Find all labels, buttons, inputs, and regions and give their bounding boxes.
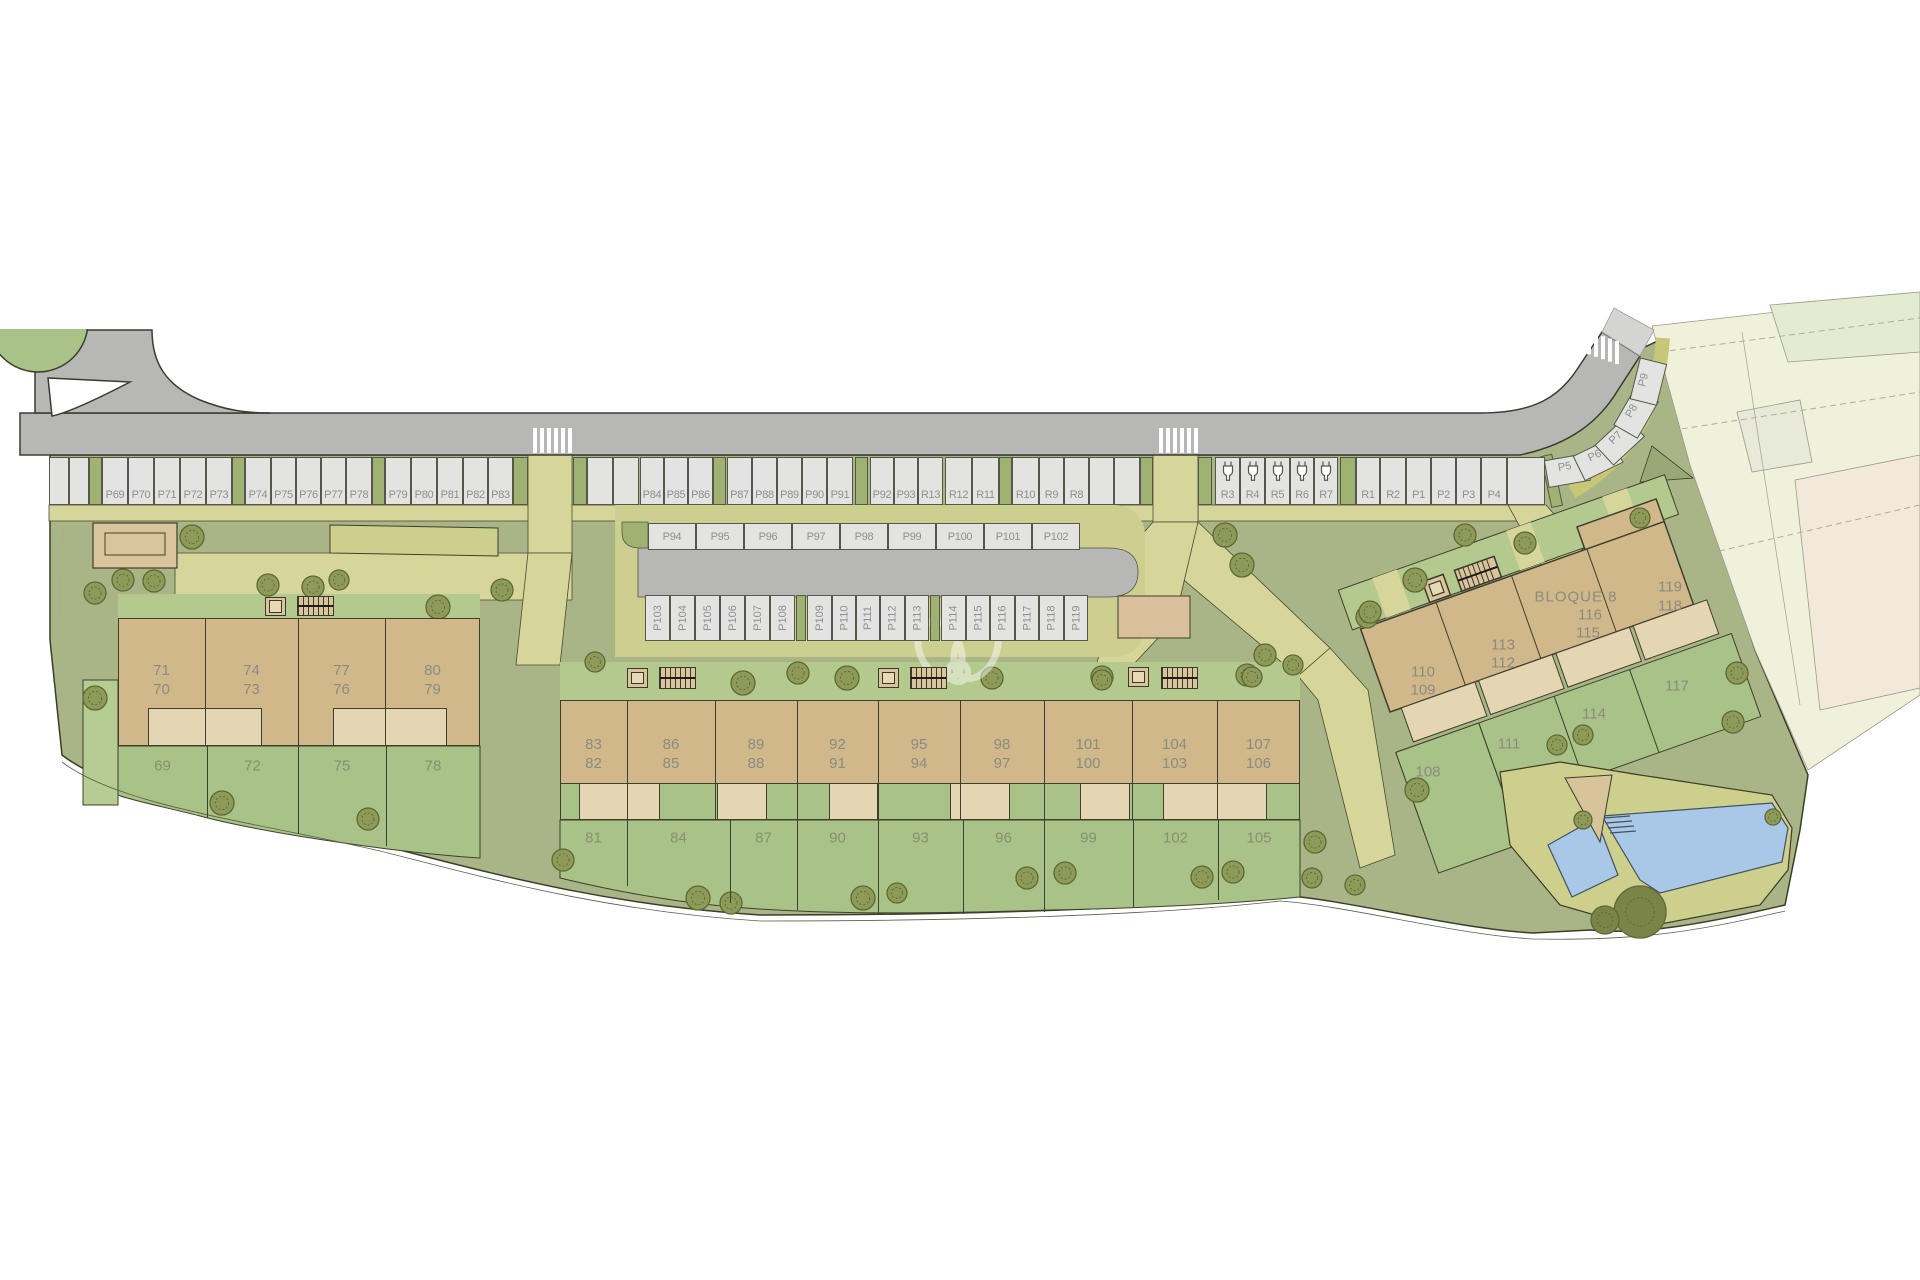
parking-stall-p78: P78 bbox=[346, 457, 372, 505]
terrace bbox=[950, 783, 1010, 820]
parking-stall-p2: P2 bbox=[1431, 457, 1456, 505]
unit-number: 74 bbox=[243, 661, 260, 680]
parking-stall-r9: R9 bbox=[1039, 457, 1064, 505]
elevator-icon bbox=[265, 597, 286, 616]
elevator-car bbox=[269, 600, 282, 612]
site-plan: BLOQUE 6 BLOQUE 7 P69P70P71P72P73P74P75P… bbox=[0, 0, 1920, 1280]
parking-stall-r6: R6 bbox=[1290, 457, 1314, 505]
garden-divider bbox=[207, 746, 208, 818]
unit-number-112: 112 bbox=[1491, 654, 1515, 673]
parking-stall-p82: P82 bbox=[463, 457, 488, 505]
stall-label: R5 bbox=[1271, 489, 1284, 504]
terrace bbox=[717, 783, 767, 820]
unit-divider bbox=[797, 700, 798, 820]
parking-stall-p75: P75 bbox=[271, 457, 296, 505]
parking-stall-p1: P1 bbox=[1406, 457, 1431, 505]
unit-number-115: 115 bbox=[1576, 624, 1600, 643]
stall-label: P88 bbox=[755, 489, 774, 504]
parking-stall-p72: P72 bbox=[180, 457, 206, 505]
parking-stall-p88: P88 bbox=[752, 457, 777, 505]
stall-label: P95 bbox=[711, 531, 730, 549]
parking-stall-p74: P74 bbox=[245, 457, 271, 505]
parking-stall-p89: P89 bbox=[777, 457, 802, 505]
stall-label: P82 bbox=[466, 489, 485, 504]
green-stall bbox=[796, 595, 806, 641]
parking-stall-p92: P92 bbox=[870, 457, 894, 505]
terrace bbox=[1163, 783, 1267, 820]
unit-number: 92 bbox=[829, 735, 846, 754]
unit-cell-92-91: 9291 bbox=[829, 735, 846, 773]
stall-label: P84 bbox=[643, 489, 662, 504]
unit-number: 79 bbox=[424, 680, 441, 699]
parking-stall bbox=[1507, 457, 1545, 505]
parking-stall bbox=[1114, 457, 1140, 505]
parking-stall-p102: P102 bbox=[1032, 523, 1080, 550]
elevator-car bbox=[631, 672, 644, 685]
stall-label: P111 bbox=[862, 606, 874, 630]
garden-divider bbox=[1218, 820, 1219, 900]
stall-label: R13 bbox=[921, 489, 940, 504]
stall-label: R10 bbox=[1016, 489, 1035, 504]
unit-number-108: 108 bbox=[1415, 763, 1440, 782]
parking-stall-p115: P115 bbox=[966, 595, 990, 641]
stall-label: P94 bbox=[663, 531, 682, 549]
unit-divider bbox=[878, 700, 879, 820]
terrace bbox=[333, 708, 447, 746]
parking-stall-p91: P91 bbox=[827, 457, 853, 505]
parking-stall bbox=[587, 457, 613, 505]
stall-label: P83 bbox=[491, 489, 510, 504]
stall-label: R12 bbox=[949, 489, 968, 504]
unit-number-117: 117 bbox=[1665, 677, 1689, 696]
unit-number: 76 bbox=[333, 680, 350, 699]
stall-label: P110 bbox=[838, 606, 850, 631]
parking-stall-p71: P71 bbox=[154, 457, 180, 505]
terrace bbox=[579, 783, 660, 820]
stall-label: R11 bbox=[976, 489, 994, 504]
unit-number: 101 bbox=[1075, 735, 1100, 754]
unit-number-114: 114 bbox=[1582, 705, 1606, 724]
parking-stall-r1: R1 bbox=[1356, 457, 1380, 505]
stall-label: P77 bbox=[324, 489, 343, 504]
unit-number: 91 bbox=[829, 754, 846, 773]
stall-label: R9 bbox=[1045, 489, 1058, 504]
stall-label: P73 bbox=[210, 489, 229, 504]
unit-divider bbox=[1132, 700, 1133, 820]
unit-number-118: 118 bbox=[1658, 597, 1682, 616]
stair-rail bbox=[911, 677, 946, 679]
garden-plot-69: 69 bbox=[154, 758, 171, 775]
unit-number-119: 119 bbox=[1658, 578, 1682, 597]
stairs-icon bbox=[910, 667, 947, 689]
stall-label: P117 bbox=[1021, 606, 1033, 631]
bloque8-title: BLOQUE 8 bbox=[1534, 589, 1617, 606]
parking-stall-p69: P69 bbox=[102, 457, 128, 505]
unit-cell-71-70: 7170 bbox=[153, 661, 170, 699]
unit-number: 100 bbox=[1075, 754, 1100, 773]
parking-stall-p3: P3 bbox=[1456, 457, 1481, 505]
stall-label: P103 bbox=[652, 605, 664, 631]
stall-label: P4 bbox=[1488, 489, 1501, 504]
unit-number: 106 bbox=[1246, 754, 1271, 773]
green-stall bbox=[573, 457, 587, 505]
stall-label: P101 bbox=[996, 531, 1021, 549]
garden-plot-105: 105 bbox=[1246, 830, 1271, 847]
unit-divider bbox=[627, 700, 628, 820]
ev-charger-icon bbox=[1220, 460, 1235, 489]
ev-charger-icon bbox=[1270, 460, 1285, 489]
unit-number: 97 bbox=[994, 754, 1011, 773]
garden-divider bbox=[963, 820, 964, 914]
stall-label: P96 bbox=[759, 531, 778, 549]
unit-divider bbox=[298, 618, 299, 746]
stall-label-p7: P7 bbox=[1607, 429, 1625, 447]
unit-cell-101-100: 101100 bbox=[1075, 735, 1100, 773]
parking-stall-p81: P81 bbox=[437, 457, 463, 505]
parking-stall-r12: R12 bbox=[945, 457, 972, 505]
parking-stall-p76: P76 bbox=[296, 457, 321, 505]
parking-stall-p105: P105 bbox=[695, 595, 720, 641]
unit-divider bbox=[385, 618, 386, 746]
stall-label: P98 bbox=[855, 531, 874, 549]
green-stall bbox=[855, 457, 868, 505]
parking-stall-p112: P112 bbox=[880, 595, 905, 641]
green-stall bbox=[1140, 457, 1153, 505]
garden-plot-90: 90 bbox=[829, 830, 846, 847]
stall-label: P106 bbox=[727, 605, 739, 631]
green-stall bbox=[372, 457, 385, 505]
parking-stall-p83: P83 bbox=[488, 457, 513, 505]
stair-rail bbox=[1162, 677, 1197, 679]
parking-stall-p4: P4 bbox=[1481, 457, 1507, 505]
unit-number-116: 116 bbox=[1578, 606, 1602, 625]
parking-stall-r8: R8 bbox=[1064, 457, 1089, 505]
unit-number: 89 bbox=[748, 735, 765, 754]
garden-plot-87: 87 bbox=[755, 830, 772, 847]
unit-cell-83-82: 8382 bbox=[585, 735, 602, 773]
stall-label: P97 bbox=[807, 531, 826, 549]
stall-label-p6: P6 bbox=[1586, 448, 1603, 465]
unit-cell-107-106: 107106 bbox=[1246, 735, 1271, 773]
parking-stall-p96: P96 bbox=[744, 523, 792, 550]
parking-stall-p103: P103 bbox=[645, 595, 670, 641]
stall-label-p8: P8 bbox=[1623, 402, 1640, 420]
green-stall bbox=[999, 457, 1012, 505]
stall-label: P69 bbox=[106, 489, 125, 504]
stall-label: P109 bbox=[814, 605, 826, 631]
unit-number: 104 bbox=[1162, 735, 1187, 754]
parking-stall-p113: P113 bbox=[905, 595, 929, 641]
unit-number: 95 bbox=[911, 735, 928, 754]
parking-stall-p114: P114 bbox=[941, 595, 966, 641]
unit-cell-86-85: 8685 bbox=[663, 735, 680, 773]
parking-stall bbox=[49, 457, 69, 505]
stall-label: P91 bbox=[831, 489, 850, 504]
stall-label: P92 bbox=[873, 489, 892, 504]
elevator-icon bbox=[878, 668, 899, 688]
parking-stall-r2: R2 bbox=[1380, 457, 1406, 505]
parking-stall-p100: P100 bbox=[936, 523, 984, 550]
stairs-icon bbox=[659, 667, 696, 689]
garden-divider bbox=[386, 746, 387, 846]
stall-label: P1 bbox=[1412, 489, 1425, 504]
parking-stall-p70: P70 bbox=[128, 457, 154, 505]
unit-cell-89-88: 8988 bbox=[748, 735, 765, 773]
stall-label: R7 bbox=[1319, 489, 1332, 504]
stall-label: P90 bbox=[805, 489, 824, 504]
parking-stall-p118: P118 bbox=[1039, 595, 1064, 641]
stall-label: P75 bbox=[274, 489, 293, 504]
unit-number: 85 bbox=[663, 754, 680, 773]
parking-stall-p95: P95 bbox=[696, 523, 744, 550]
stall-label: P108 bbox=[777, 605, 789, 631]
unit-cell-95-94: 9594 bbox=[911, 735, 928, 773]
stall-label: P100 bbox=[948, 531, 973, 549]
unit-number-109: 109 bbox=[1410, 681, 1435, 700]
parking-stall-p87: P87 bbox=[727, 457, 752, 505]
unit-number-110: 110 bbox=[1411, 663, 1435, 682]
parking-stall-r3: R3 bbox=[1215, 457, 1240, 505]
parking-stall-p97: P97 bbox=[792, 523, 840, 550]
stall-label: R4 bbox=[1246, 489, 1259, 504]
unit-number: 77 bbox=[333, 661, 350, 680]
garden-divider bbox=[298, 746, 299, 834]
stall-label: P119 bbox=[1070, 606, 1082, 631]
unit-cell-104-103: 104103 bbox=[1162, 735, 1187, 773]
green-stall bbox=[232, 457, 245, 505]
green-stall bbox=[930, 595, 940, 641]
unit-number: 107 bbox=[1246, 735, 1271, 754]
stall-label: P71 bbox=[158, 489, 177, 504]
unit-number: 80 bbox=[424, 661, 441, 680]
stall-label: P80 bbox=[415, 489, 434, 504]
parking-stall-r10: R10 bbox=[1012, 457, 1039, 505]
stall-label: P115 bbox=[972, 606, 984, 631]
parking-stall-p93: P93 bbox=[894, 457, 918, 505]
unit-number: 98 bbox=[994, 735, 1011, 754]
parking-stall-p85: P85 bbox=[664, 457, 688, 505]
parking-stall-p107: P107 bbox=[745, 595, 770, 641]
parking-stall-r11: R11 bbox=[972, 457, 999, 505]
elevator-icon bbox=[1128, 667, 1149, 687]
stall-label: P76 bbox=[299, 489, 318, 504]
parking-stall-r13: R13 bbox=[918, 457, 943, 505]
terrace bbox=[829, 783, 878, 820]
garden-divider bbox=[1044, 820, 1045, 912]
garden-plot-75: 75 bbox=[334, 758, 351, 775]
stall-label: P107 bbox=[752, 605, 764, 631]
garden-plot-84: 84 bbox=[670, 830, 687, 847]
unit-number: 103 bbox=[1162, 754, 1187, 773]
parking-stall-p80: P80 bbox=[411, 457, 437, 505]
stall-label: P3 bbox=[1462, 489, 1475, 504]
stall-label: P93 bbox=[897, 489, 916, 504]
parking-stall-p84: P84 bbox=[640, 457, 664, 505]
stall-label: P102 bbox=[1044, 531, 1069, 549]
stall-label: R8 bbox=[1070, 489, 1083, 504]
parking-stall-p98: P98 bbox=[840, 523, 888, 550]
parking-stall-r7: R7 bbox=[1314, 457, 1338, 505]
green-stall bbox=[513, 457, 528, 505]
garden-divider bbox=[627, 820, 628, 886]
garden-plot-78: 78 bbox=[425, 758, 442, 775]
stall-label: P104 bbox=[677, 605, 689, 631]
unit-number: 82 bbox=[585, 754, 602, 773]
unit-number: 88 bbox=[748, 754, 765, 773]
unit-divider bbox=[715, 700, 716, 820]
stall-label: P113 bbox=[911, 606, 923, 631]
parking-stall-p116: P116 bbox=[990, 595, 1015, 641]
parking-stall-p86: P86 bbox=[688, 457, 713, 505]
parking-stall-p101: P101 bbox=[984, 523, 1032, 550]
stall-label: P114 bbox=[948, 606, 960, 631]
garden-divider bbox=[797, 820, 798, 910]
parking-stall-p119: P119 bbox=[1064, 595, 1088, 641]
stairs-icon bbox=[297, 596, 334, 616]
garden-plot-102: 102 bbox=[1163, 830, 1188, 847]
stall-label: P2 bbox=[1437, 489, 1450, 504]
unit-divider bbox=[960, 700, 961, 820]
garden-divider bbox=[878, 820, 879, 913]
parking-stall-p73: P73 bbox=[206, 457, 232, 505]
stall-label: P72 bbox=[184, 489, 203, 504]
parking-stall bbox=[69, 457, 89, 505]
unit-number: 73 bbox=[243, 680, 260, 699]
stall-label: P116 bbox=[997, 606, 1009, 631]
stall-label: P86 bbox=[691, 489, 710, 504]
parking-stall-p79: P79 bbox=[385, 457, 411, 505]
garden-plot-72: 72 bbox=[244, 758, 261, 775]
unit-divider bbox=[1044, 700, 1045, 820]
ev-charger-icon bbox=[1319, 460, 1334, 489]
stall-label: R3 bbox=[1221, 489, 1234, 504]
parking-stall-p99: P99 bbox=[888, 523, 936, 550]
stall-label: P105 bbox=[702, 605, 714, 631]
stall-label: R6 bbox=[1295, 489, 1308, 504]
ev-charger-icon bbox=[1245, 460, 1260, 489]
parking-stall-p77: P77 bbox=[321, 457, 346, 505]
garden-plot-96: 96 bbox=[995, 830, 1012, 847]
stall-label: P112 bbox=[887, 606, 899, 631]
unit-number: 70 bbox=[153, 680, 170, 699]
stall-label: P74 bbox=[249, 489, 268, 504]
garden-plot-81: 81 bbox=[585, 830, 602, 847]
stall-label-p9: P9 bbox=[1636, 372, 1651, 388]
parking-stall bbox=[1089, 457, 1114, 505]
stall-label: P70 bbox=[132, 489, 151, 504]
parking-stall-p117: P117 bbox=[1015, 595, 1039, 641]
stall-label: P87 bbox=[730, 489, 749, 504]
parking-stall-p110: P110 bbox=[832, 595, 856, 641]
stall-label: R2 bbox=[1386, 489, 1399, 504]
elevator-car bbox=[1132, 671, 1145, 684]
parking-stall bbox=[613, 457, 639, 505]
parking-stall-r5: R5 bbox=[1265, 457, 1290, 505]
unit-number: 86 bbox=[663, 735, 680, 754]
parking-stall-p94: P94 bbox=[648, 523, 696, 550]
parking-stall-r4: R4 bbox=[1240, 457, 1265, 505]
unit-number-111: 111 bbox=[1498, 735, 1521, 754]
ev-charger-icon bbox=[1295, 460, 1310, 489]
stair-rail bbox=[660, 677, 695, 679]
unit-cell-98-97: 9897 bbox=[994, 735, 1011, 773]
green-stall bbox=[713, 457, 726, 505]
parking-stall-p109: P109 bbox=[807, 595, 832, 641]
unit-number: 71 bbox=[153, 661, 170, 680]
parking-stall-p108: P108 bbox=[770, 595, 795, 641]
unit-number-113: 113 bbox=[1491, 636, 1515, 655]
garden-plot-93: 93 bbox=[912, 830, 929, 847]
unit-cell-77-76: 7776 bbox=[333, 661, 350, 699]
unit-divider bbox=[1217, 700, 1218, 820]
unit-number: 83 bbox=[585, 735, 602, 754]
stall-label: R1 bbox=[1361, 489, 1374, 504]
stairs-icon bbox=[1161, 667, 1198, 689]
green-stall bbox=[1198, 457, 1212, 505]
stall-label: P79 bbox=[389, 489, 408, 504]
stall-label: P85 bbox=[667, 489, 686, 504]
unit-divider bbox=[205, 618, 206, 746]
parking-stall-p106: P106 bbox=[720, 595, 745, 641]
elevator-car bbox=[882, 672, 895, 685]
garden-divider bbox=[730, 820, 731, 903]
garden-plot-99: 99 bbox=[1080, 830, 1097, 847]
parking-stall-p104: P104 bbox=[670, 595, 695, 641]
stall-label: P78 bbox=[350, 489, 369, 504]
stall-label: P89 bbox=[780, 489, 799, 504]
stall-label-p5: P5 bbox=[1557, 460, 1572, 474]
stall-label: P99 bbox=[903, 531, 922, 549]
stall-label: P118 bbox=[1046, 606, 1058, 631]
garden-divider bbox=[1133, 820, 1134, 907]
terrace bbox=[1080, 783, 1130, 820]
parking-stall-p111: P111 bbox=[856, 595, 880, 641]
unit-cell-74-73: 7473 bbox=[243, 661, 260, 699]
unit-number: 94 bbox=[911, 754, 928, 773]
parking-stall-p90: P90 bbox=[802, 457, 827, 505]
green-stall bbox=[1340, 457, 1356, 505]
green-stall bbox=[89, 457, 102, 505]
unit-cell-80-79: 8079 bbox=[424, 661, 441, 699]
stall-label: P81 bbox=[441, 489, 460, 504]
elevator-icon bbox=[627, 668, 648, 688]
stair-rail bbox=[298, 605, 333, 607]
